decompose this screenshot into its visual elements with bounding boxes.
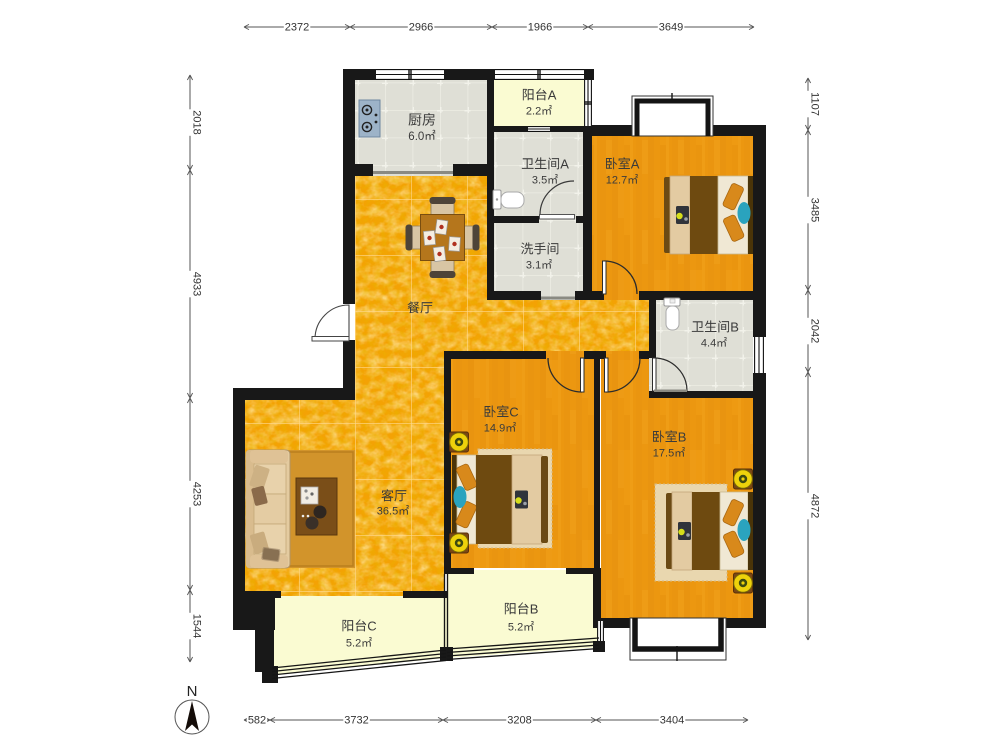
svg-text:N: N	[187, 683, 198, 700]
svg-text:C: C	[509, 404, 518, 419]
svg-text:4933: 4933	[191, 272, 203, 296]
svg-text:3.5: 3.5	[532, 175, 547, 187]
svg-text:2372: 2372	[285, 22, 309, 34]
svg-text:1966: 1966	[528, 22, 552, 34]
svg-text:B: B	[678, 429, 687, 444]
svg-text:C: C	[367, 618, 376, 633]
svg-text:4.4: 4.4	[701, 338, 716, 350]
svg-text:36.5: 36.5	[377, 506, 398, 518]
svg-text:3732: 3732	[344, 715, 368, 727]
svg-text:B: B	[730, 319, 739, 334]
svg-text:6.0: 6.0	[408, 131, 424, 143]
svg-text:3.1: 3.1	[526, 260, 541, 272]
svg-text:A: A	[548, 87, 557, 102]
svg-text:17.5: 17.5	[653, 448, 674, 460]
svg-text:2042: 2042	[809, 319, 821, 343]
svg-text:A: A	[631, 156, 640, 171]
svg-text:2018: 2018	[191, 110, 203, 134]
svg-text:2966: 2966	[409, 22, 433, 34]
svg-text:5.2: 5.2	[508, 622, 523, 634]
svg-text:4872: 4872	[809, 494, 821, 518]
svg-text:4253: 4253	[191, 482, 203, 506]
svg-text:2.2: 2.2	[526, 106, 541, 118]
svg-text:3404: 3404	[660, 715, 684, 727]
svg-text:14.9: 14.9	[484, 423, 505, 435]
svg-text:12.7: 12.7	[606, 175, 627, 187]
svg-text:3649: 3649	[659, 22, 683, 34]
svg-text:582: 582	[248, 715, 266, 727]
svg-text:5.2: 5.2	[346, 638, 361, 650]
svg-text:1544: 1544	[191, 614, 203, 638]
svg-text:A: A	[560, 156, 569, 171]
svg-text:3208: 3208	[507, 715, 531, 727]
svg-text:1107: 1107	[809, 92, 821, 116]
svg-text:3485: 3485	[809, 198, 821, 222]
svg-text:B: B	[530, 601, 539, 616]
